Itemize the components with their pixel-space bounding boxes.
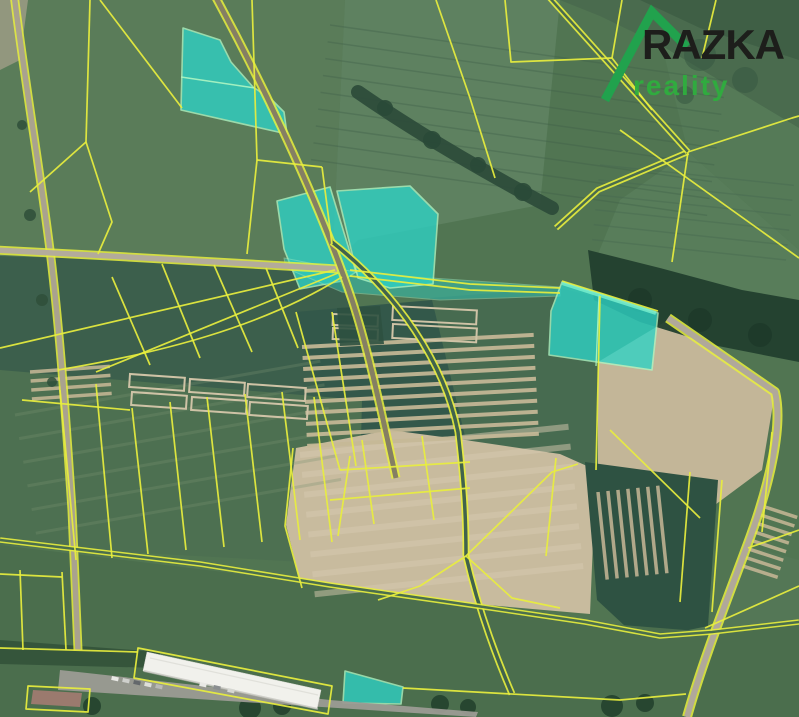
- tree-clump: [470, 157, 486, 173]
- red-roof-building: [31, 690, 82, 707]
- tree-clump: [684, 39, 716, 71]
- tree-clump: [732, 67, 758, 93]
- tree-clump: [24, 209, 36, 221]
- tree-clump: [36, 294, 48, 306]
- map-canvas: [0, 0, 799, 717]
- tree-clump: [748, 323, 772, 347]
- tree-clump: [514, 183, 532, 201]
- tree-clump: [423, 131, 441, 149]
- tree-clump: [377, 100, 393, 116]
- tree-clump: [47, 377, 57, 387]
- tree-clump: [676, 86, 694, 104]
- tree-clump: [17, 120, 27, 130]
- aerial-cadastral-map: RAZKA reality: [0, 0, 799, 717]
